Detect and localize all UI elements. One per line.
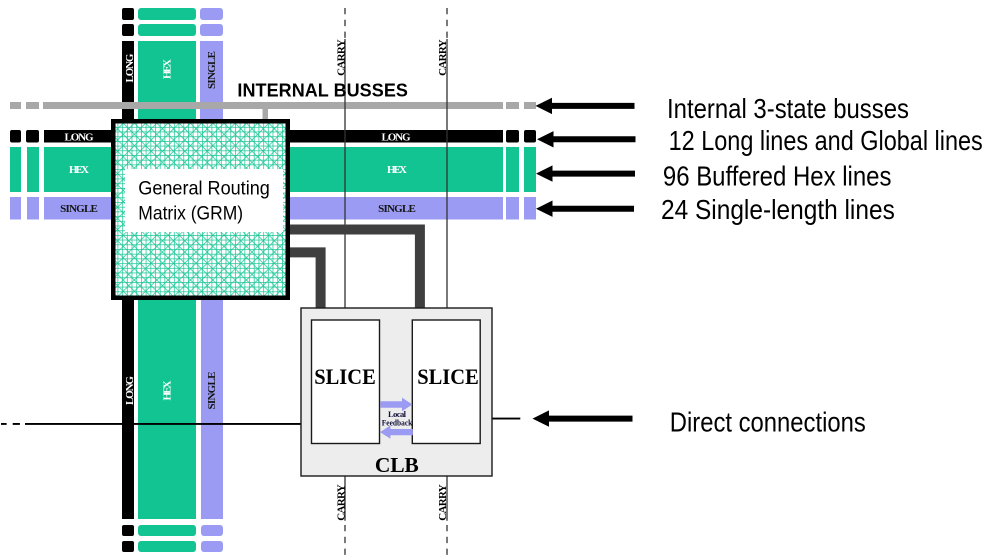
svg-text:CARRY: CARRY — [335, 484, 347, 521]
svg-text:HEX: HEX — [162, 59, 174, 79]
svg-text:CLB: CLB — [375, 453, 419, 477]
svg-text:LONG: LONG — [382, 131, 411, 143]
svg-text:LONG: LONG — [124, 376, 136, 405]
svg-text:12 Long lines and Global lines: 12 Long lines and Global lines — [669, 125, 983, 156]
svg-text:Direct connections: Direct connections — [670, 407, 866, 438]
svg-text:HEX: HEX — [162, 380, 174, 400]
svg-text:LONG: LONG — [65, 131, 94, 143]
svg-text:24 Single-length lines: 24 Single-length lines — [661, 194, 895, 225]
svg-text:HEX: HEX — [69, 164, 89, 176]
svg-text:CARRY: CARRY — [437, 484, 449, 521]
svg-text:Matrix (GRM): Matrix (GRM) — [138, 203, 243, 225]
svg-text:SINGLE: SINGLE — [206, 372, 218, 410]
svg-text:Feedback: Feedback — [382, 418, 413, 428]
svg-text:LONG: LONG — [124, 53, 136, 82]
svg-text:SINGLE: SINGLE — [378, 203, 416, 215]
svg-text:HEX: HEX — [387, 164, 407, 176]
svg-text:SINGLE: SINGLE — [60, 203, 98, 215]
svg-text:SINGLE: SINGLE — [206, 51, 218, 89]
svg-text:CARRY: CARRY — [335, 39, 347, 76]
svg-text:96 Buffered Hex lines: 96 Buffered Hex lines — [663, 161, 892, 192]
svg-text:Internal 3-state busses: Internal 3-state busses — [667, 93, 909, 124]
svg-text:CARRY: CARRY — [437, 39, 449, 76]
svg-text:INTERNAL BUSSES: INTERNAL BUSSES — [237, 81, 408, 101]
svg-text:SLICE: SLICE — [417, 364, 479, 389]
svg-text:SLICE: SLICE — [314, 364, 376, 389]
svg-text:General Routing: General Routing — [138, 178, 269, 200]
